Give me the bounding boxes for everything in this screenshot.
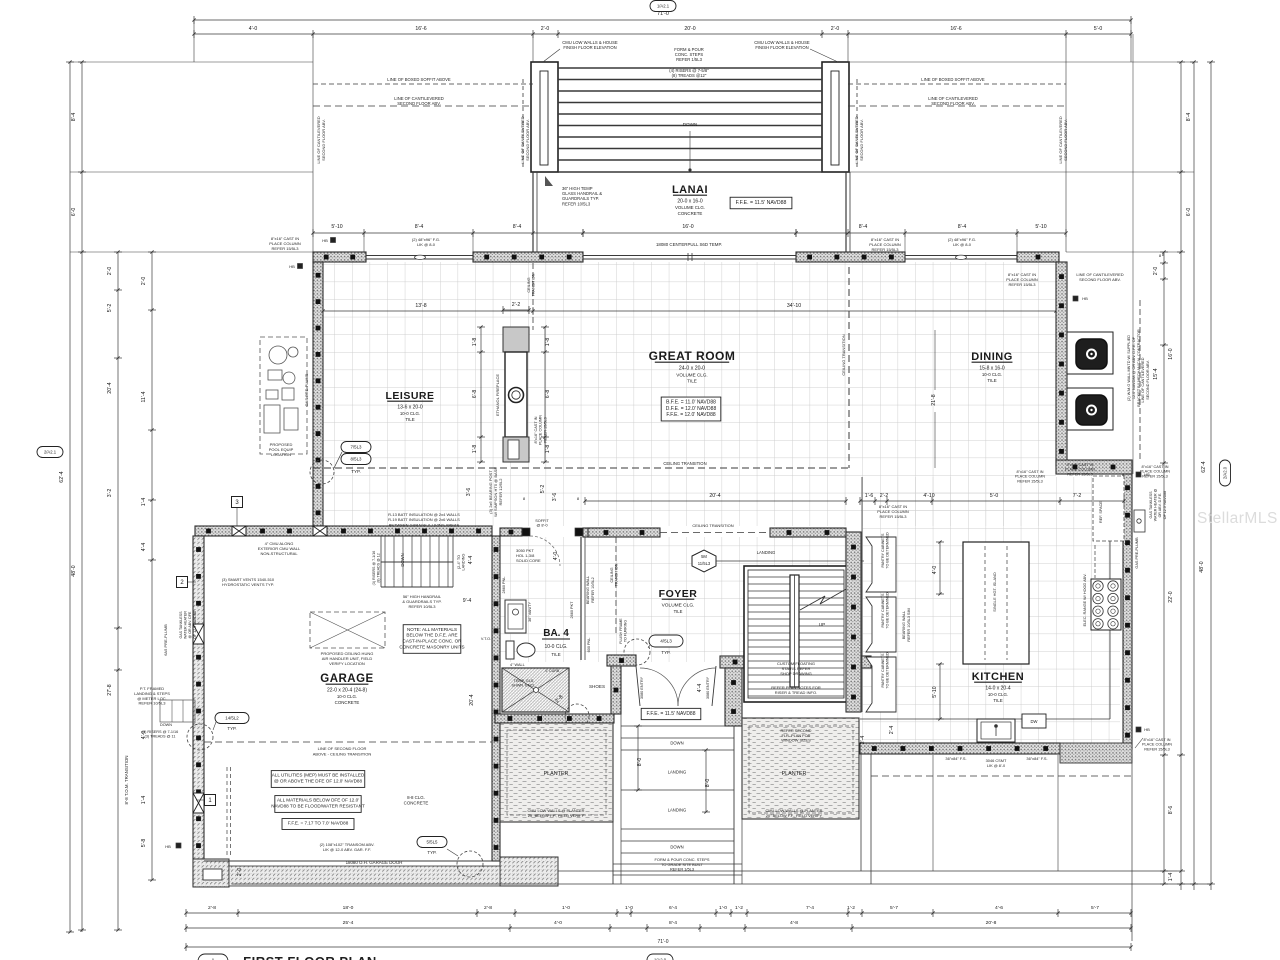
svg-text:PLANTER: PLANTER — [544, 771, 569, 777]
svg-text:4'-10: 4'-10 — [923, 493, 934, 499]
svg-text:8'-4: 8'-4 — [71, 113, 77, 122]
svg-text:SHOP DRAWING: SHOP DRAWING — [780, 671, 812, 676]
svg-text:TO BE DETERMINED: TO BE DETERMINED — [886, 592, 890, 629]
svg-text:FIRST FLOOR PLAN: FIRST FLOOR PLAN — [243, 954, 377, 960]
svg-text:10-0 CLG.: 10-0 CLG. — [982, 372, 1002, 377]
svg-text:TYP.: TYP. — [427, 850, 436, 855]
svg-text:NOTE: ALL MATERIALS: NOTE: ALL MATERIALS — [407, 627, 457, 632]
svg-text:BEARING WALL: BEARING WALL — [586, 576, 590, 604]
svg-text:2/A2.1: 2/A2.1 — [44, 450, 57, 455]
svg-text:LANDING: LANDING — [668, 770, 687, 775]
svg-text:20" BELOW F.F., FIELD VERIFY: 20" BELOW F.F., FIELD VERIFY — [528, 813, 585, 818]
svg-text:DINING: DINING — [971, 351, 1013, 363]
svg-text:OF 12.0 NAVD88: OF 12.0 NAVD88 — [193, 611, 197, 639]
svg-text:6'-8: 6'-8 — [545, 390, 551, 399]
svg-text:SECOND FLOOR ABV.: SECOND FLOOR ABV. — [1079, 277, 1121, 282]
svg-text:25'-4: 25'-4 — [343, 920, 354, 926]
svg-text:2'-0: 2'-0 — [237, 868, 243, 877]
svg-text:(8) TREADS @ 12: (8) TREADS @ 12 — [377, 553, 381, 583]
svg-text:TILE: TILE — [405, 417, 414, 422]
svg-text:F.F.E. = 11.5' NAVD88: F.F.E. = 11.5' NAVD88 — [647, 711, 696, 717]
svg-text:5'-2: 5'-2 — [540, 485, 546, 494]
svg-text:SECOND FLOOR ABV.: SECOND FLOOR ABV. — [931, 101, 975, 106]
svg-text:REFER 15/5L3: REFER 15/5L3 — [543, 417, 547, 443]
svg-text:2/A2.0: 2/A2.0 — [1223, 466, 1228, 479]
svg-text:REFER 15/5L3: REFER 15/5L3 — [1142, 474, 1168, 478]
svg-text:SECOND FLOOR ABV.: SECOND FLOOR ABV. — [1146, 360, 1150, 400]
svg-text:CEILING TRANSITION: CEILING TRANSITION — [692, 523, 733, 528]
svg-text:24-0 x 20-0: 24-0 x 20-0 — [679, 366, 705, 372]
svg-text:NON-STRUCTURAL: NON-STRUCTURAL — [260, 551, 298, 556]
svg-text:600 PNL: 600 PNL — [587, 638, 591, 653]
svg-text:9'-4: 9'-4 — [463, 598, 472, 604]
svg-text:6'-4: 6'-4 — [669, 905, 677, 911]
svg-text:TO BE DETERMINED: TO BE DETERMINED — [886, 532, 890, 569]
svg-text:3'-6: 3'-6 — [552, 493, 558, 502]
svg-text:SECOND FLOOR ABV.: SECOND FLOOR ABV. — [397, 101, 441, 106]
svg-text:2'-4: 2'-4 — [860, 736, 866, 745]
svg-text:4" WALL: 4" WALL — [510, 663, 525, 667]
svg-text:1'-4: 1'-4 — [141, 796, 147, 805]
svg-text:1'-4: 1'-4 — [1168, 873, 1174, 882]
svg-text:21'-8: 21'-8 — [931, 394, 937, 405]
svg-text:StellarMLS: StellarMLS — [1197, 510, 1278, 527]
svg-text:PLACE COLUMN: PLACE COLUMN — [1140, 470, 1170, 474]
svg-text:8"x16" CAST IN: 8"x16" CAST IN — [1067, 463, 1094, 467]
svg-text:GREAT ROOM: GREAT ROOM — [649, 349, 736, 363]
svg-text:SINGLE HGT. ISLAND: SINGLE HGT. ISLAND — [992, 572, 997, 612]
svg-text:REFER 15/5L3: REFER 15/5L3 — [880, 514, 908, 519]
svg-text:5M: 5M — [701, 554, 707, 559]
svg-text:TILE: TILE — [551, 652, 560, 657]
svg-text:ALL UTILITIES (MEP) MUST BE IN: ALL UTILITIES (MEP) MUST BE INSTALLED — [272, 773, 365, 778]
svg-text:LANDING: LANDING — [757, 550, 776, 555]
svg-text:CONCRETE: CONCRETE — [404, 800, 429, 805]
svg-text:1'-0: 1'-0 — [625, 905, 633, 911]
svg-text:ELEC. RANGE W/ HOOD ABV.: ELEC. RANGE W/ HOOD ABV. — [1083, 574, 1087, 627]
svg-text:REFER 15/5L3: REFER 15/5L3 — [1144, 747, 1170, 751]
svg-text:REFER 10/5L3: REFER 10/5L3 — [409, 604, 437, 609]
svg-text:36"x84" F.S.: 36"x84" F.S. — [945, 756, 966, 761]
svg-text:FINISH FLOOR ELEVATION: FINISH FLOOR ELEVATION — [755, 45, 808, 50]
svg-text:REFER 12/5L2: REFER 12/5L2 — [498, 478, 503, 506]
svg-text:10-0 CLG.: 10-0 CLG. — [400, 411, 420, 416]
svg-text:18080 O.H. GARAGE DOOR: 18080 O.H. GARAGE DOOR — [346, 860, 403, 865]
svg-text:16'-0: 16'-0 — [682, 224, 693, 230]
svg-text:PANTRY CABINETS: PANTRY CABINETS — [881, 593, 885, 628]
svg-text:SHWR. ENCL.: SHWR. ENCL. — [512, 684, 537, 688]
svg-text:TYP.: TYP. — [661, 650, 670, 655]
svg-text:5'-8: 5'-8 — [141, 839, 147, 848]
svg-text:(3) RISERS @ 7-1/16: (3) RISERS @ 7-1/16 — [372, 551, 376, 586]
svg-text:ALL MATERIALS BELOW DFE OF 12.: ALL MATERIALS BELOW DFE OF 12.0' — [277, 798, 359, 803]
svg-text:16'-6: 16'-6 — [415, 26, 426, 32]
svg-text:1'-2: 1'-2 — [735, 905, 743, 911]
svg-text:8'-6: 8'-6 — [1168, 806, 1174, 815]
svg-text:2'-0: 2'-0 — [1153, 267, 1159, 276]
svg-text:TILE: TILE — [987, 378, 996, 383]
svg-text:GAS TANKLESS: GAS TANKLESS — [179, 611, 183, 639]
svg-text:SOFFIT: SOFFIT — [535, 519, 549, 523]
svg-text:5'-7: 5'-7 — [890, 905, 898, 911]
svg-text:HB: HB — [322, 238, 328, 243]
svg-text:4'-0: 4'-0 — [554, 920, 562, 926]
svg-text:20" BELOW F.F., FIELD VERIFY: 20" BELOW F.F., FIELD VERIFY — [766, 813, 823, 818]
svg-text:PLACE COLUMN: PLACE COLUMN — [539, 415, 543, 445]
svg-text:DW: DW — [1031, 719, 1038, 724]
svg-text:3'-2: 3'-2 — [107, 489, 113, 498]
svg-text:6'-8: 6'-8 — [472, 390, 478, 399]
svg-text:TRANSITION: TRANSITION — [615, 563, 619, 586]
svg-text:8-8 CLG.: 8-8 CLG. — [407, 795, 425, 800]
svg-text:48'-0: 48'-0 — [1199, 561, 1205, 572]
svg-text:REF. SPACE: REF. SPACE — [1099, 501, 1103, 523]
svg-text:HB: HB — [289, 264, 295, 269]
svg-text:WINDOW SIZES: WINDOW SIZES — [781, 738, 811, 743]
svg-text:1'-4: 1'-4 — [141, 498, 147, 507]
svg-text:CONCRETE: CONCRETE — [335, 700, 360, 705]
svg-text:2'-8: 2'-8 — [484, 905, 492, 911]
svg-text:REFER 10/5L3: REFER 10/5L3 — [562, 201, 591, 206]
svg-text:WATER HEATER: WATER HEATER — [184, 611, 188, 639]
svg-text:8"x16" CAST IN: 8"x16" CAST IN — [534, 416, 538, 443]
svg-text:36" VANITY: 36" VANITY — [528, 602, 532, 623]
svg-text:10-0 CLG.: 10-0 CLG. — [337, 694, 357, 699]
svg-text:8'-4: 8'-4 — [415, 224, 424, 230]
svg-text:TILE: TILE — [993, 698, 1002, 703]
svg-text:8'-4: 8'-4 — [958, 224, 967, 230]
svg-text:LINE OF SECOND FLOOR: LINE OF SECOND FLOOR — [318, 746, 367, 751]
svg-text:5'-0: 5'-0 — [1094, 26, 1103, 32]
svg-text:8'-4: 8'-4 — [1186, 113, 1192, 122]
svg-text:KITCHEN: KITCHEN — [972, 671, 1024, 683]
svg-text:SECOND FLOOR ABV.: SECOND FLOOR ABV. — [859, 119, 864, 161]
svg-text:20'-4: 20'-4 — [469, 694, 475, 705]
svg-text:6A5 PRE-PLUMB: 6A5 PRE-PLUMB — [163, 624, 168, 656]
svg-text:8'-4: 8'-4 — [859, 224, 868, 230]
svg-text:11'-4: 11'-4 — [141, 391, 147, 402]
svg-text:TYP.: TYP. — [227, 726, 236, 731]
svg-text:REFER 15/5L3: REFER 15/5L3 — [1067, 472, 1093, 476]
svg-text:2'-0: 2'-0 — [831, 26, 840, 32]
svg-text:62'-4: 62'-4 — [1201, 461, 1207, 472]
svg-text:VOLUME CLG.: VOLUME CLG. — [676, 372, 707, 377]
svg-text:11/5L3: 11/5L3 — [698, 561, 711, 566]
svg-text:REFER 15/5L3: REFER 15/5L3 — [1009, 282, 1037, 287]
svg-text:@ 8'-0: @ 8'-0 — [536, 524, 547, 528]
svg-text:SECOND FLOOR ABV.: SECOND FLOOR ABV. — [1063, 119, 1068, 161]
svg-text:13-6 x 20-0: 13-6 x 20-0 — [397, 405, 423, 411]
svg-text:(2) W.M.G WALL MNTD W/ SUPPLIE: (2) W.M.G WALL MNTD W/ SUPPLIED — [1127, 335, 1131, 401]
svg-text:REFER 10/5L2: REFER 10/5L2 — [591, 577, 595, 603]
svg-text:2'-0: 2'-0 — [107, 267, 113, 276]
svg-text:LIK @ 8-0: LIK @ 8-0 — [953, 242, 972, 247]
svg-text:18080 CENTERPULL S6D TEMP.: 18080 CENTERPULL S6D TEMP. — [656, 242, 722, 247]
svg-text:REFER 15/5L3: REFER 15/5L3 — [872, 247, 900, 252]
svg-text:LIK @ 12-0 ABV. GAR. F.F.: LIK @ 12-0 ABV. GAR. F.F. — [323, 847, 371, 852]
svg-text:F.F.E. = 11.5' NAVD88: F.F.E. = 11.5' NAVD88 — [736, 200, 787, 206]
svg-text:4'-4: 4'-4 — [468, 556, 474, 565]
svg-text:1'-8: 1'-8 — [472, 338, 478, 347]
svg-text:27'-8: 27'-8 — [107, 684, 113, 695]
svg-text:PANTRY CABINETS: PANTRY CABINETS — [881, 653, 885, 688]
svg-text:GARAGE: GARAGE — [320, 673, 373, 685]
svg-text:FOYER: FOYER — [659, 588, 698, 600]
svg-text:5'-0: 5'-0 — [990, 493, 999, 499]
svg-text:LINE OF CANTILEVERED: LINE OF CANTILEVERED — [1141, 357, 1145, 402]
svg-text:REFER 15/5L3: REFER 15/5L3 — [1017, 479, 1043, 483]
svg-text:TO FURRING: TO FURRING — [624, 620, 628, 642]
svg-text:3080 ENTRY: 3080 ENTRY — [640, 676, 644, 699]
svg-text:BELOW THE D.F.E. ARE: BELOW THE D.F.E. ARE — [406, 633, 457, 638]
svg-text:CEILING: CEILING — [610, 567, 614, 582]
svg-text:CEILING TRANSITION: CEILING TRANSITION — [663, 461, 706, 466]
svg-text:2'-4: 2'-4 — [889, 726, 895, 735]
svg-text:5'-2: 5'-2 — [107, 304, 113, 313]
svg-text:LANAI: LANAI — [672, 184, 708, 196]
svg-text:16'-0: 16'-0 — [1168, 348, 1174, 359]
svg-text:ABOVE - CEILING TRANSITION: ABOVE - CEILING TRANSITION — [313, 751, 372, 756]
svg-text:22'-0: 22'-0 — [1168, 591, 1174, 602]
svg-text:1'-0: 1'-0 — [719, 905, 727, 911]
svg-text:8'-8 T.O.M. TRANSITION: 8'-8 T.O.M. TRANSITION — [124, 756, 129, 805]
svg-text:8'-0: 8'-0 — [705, 779, 711, 788]
svg-text:BEARING WALL: BEARING WALL — [902, 611, 906, 639]
svg-text:REFER 10/5L3: REFER 10/5L3 — [139, 701, 167, 706]
svg-text:GAS TANKLESS: GAS TANKLESS — [1149, 491, 1153, 519]
svg-text:UP: UP — [819, 622, 825, 627]
svg-text:BRACKET BY MECHANICAL CONTRACT: BRACKET BY MECHANICAL CONTRACTOR — [1137, 329, 1141, 407]
svg-text:CAST-IN-PLACE CONC. OR: CAST-IN-PLACE CONC. OR — [403, 639, 463, 644]
svg-text:TILE: TILE — [674, 609, 683, 614]
svg-text:LIK @ 8'-0: LIK @ 8'-0 — [987, 763, 1006, 768]
svg-text:FINISH FLOOR ELEVATION: FINISH FLOOR ELEVATION — [563, 45, 616, 50]
svg-text:4'-0: 4'-0 — [932, 566, 938, 575]
svg-text:PLACE COLUMN: PLACE COLUMN — [1065, 468, 1095, 472]
svg-text:TRANSITION: TRANSITION — [532, 273, 536, 296]
svg-text:4/5L3: 4/5L3 — [660, 639, 672, 644]
svg-text:15'-4: 15'-4 — [1153, 368, 1159, 379]
svg-text:8"x16" CAST IN: 8"x16" CAST IN — [1142, 465, 1169, 469]
svg-text:6'-0: 6'-0 — [71, 208, 77, 217]
svg-text:(2-4" TO: (2-4" TO — [457, 555, 461, 569]
svg-text:20'-0: 20'-0 — [684, 26, 695, 32]
svg-text:DOWN: DOWN — [670, 845, 683, 850]
svg-text:TO BE DETERMINED: TO BE DETERMINED — [886, 652, 890, 689]
svg-text:1/A2.1: 1/A2.1 — [657, 4, 670, 9]
svg-text:@ OR ABV. DFE: @ OR ABV. DFE — [188, 611, 192, 638]
svg-text:7'-4: 7'-4 — [806, 905, 814, 911]
svg-text:2'-8: 2'-8 — [208, 905, 216, 911]
svg-text:TILE: TILE — [687, 379, 697, 384]
svg-text:HB: HB — [1144, 727, 1150, 732]
svg-text:TYP.: TYP. — [351, 469, 361, 474]
svg-text:DOWN: DOWN — [160, 723, 172, 727]
svg-text:8/5L3: 8/5L3 — [351, 457, 363, 462]
svg-text:8"x16" CAST IN: 8"x16" CAST IN — [1017, 470, 1044, 474]
svg-text:HB: HB — [1082, 296, 1088, 301]
svg-text:34'-10: 34'-10 — [787, 303, 801, 309]
svg-text:1'-2: 1'-2 — [847, 905, 855, 911]
svg-text:8"x16" CAST IN: 8"x16" CAST IN — [1144, 738, 1171, 742]
svg-text:4'-8: 4'-8 — [790, 920, 798, 926]
svg-text:LEISURE: LEISURE — [385, 390, 434, 402]
svg-text:5'-10: 5'-10 — [331, 224, 342, 230]
svg-text:LINE OF BOXED SOFFIT ABOVE: LINE OF BOXED SOFFIT ABOVE — [921, 77, 985, 82]
svg-text:OR ABV. D.F.E.: OR ABV. D.F.E. — [1158, 493, 1162, 518]
svg-text:13'-8: 13'-8 — [415, 303, 426, 309]
svg-text:F.F.E. = 12.0' NAVD88: F.F.E. = 12.0' NAVD88 — [666, 412, 716, 418]
svg-text:16'-6: 16'-6 — [950, 26, 961, 32]
svg-text:WATER HEATER @: WATER HEATER @ — [1154, 488, 1158, 521]
svg-text:4'-6: 4'-6 — [995, 905, 1003, 911]
svg-text:20-0 x 16-0: 20-0 x 16-0 — [677, 199, 703, 205]
svg-text:CONCRETE MASONRY UNITS: CONCRETE MASONRY UNITS — [399, 645, 464, 650]
svg-text:22-0 x 20-4 (24-8): 22-0 x 20-4 (24-8) — [327, 688, 367, 694]
svg-text:5'-10: 5'-10 — [932, 686, 938, 697]
svg-text:D.F.E. = 12.0' NAVD88: D.F.E. = 12.0' NAVD88 — [666, 406, 717, 412]
svg-text:14-0 x 20-4: 14-0 x 20-4 — [985, 686, 1011, 692]
svg-text:3'-6: 3'-6 — [466, 488, 472, 497]
svg-text:8'-0: 8'-0 — [637, 758, 643, 767]
svg-text:8'-4: 8'-4 — [669, 920, 677, 926]
svg-text:7'-2: 7'-2 — [1073, 493, 1082, 499]
svg-text:10-0 CLG.: 10-0 CLG. — [544, 644, 567, 650]
svg-text:PANTRY CABINETS: PANTRY CABINETS — [881, 533, 885, 568]
svg-text:RISER & TREAD INFO.: RISER & TREAD INFO. — [775, 690, 817, 695]
svg-text:2860 PNL: 2860 PNL — [502, 577, 506, 594]
svg-text:20'-4: 20'-4 — [107, 382, 113, 393]
svg-text:REFER 10/5L3 SIM: REFER 10/5L3 SIM — [907, 608, 911, 641]
svg-text:1'-0: 1'-0 — [562, 905, 570, 911]
svg-text:VERIFY LOCATION: VERIFY LOCATION — [329, 661, 365, 666]
svg-text:7/5L3: 7/5L3 — [351, 445, 363, 450]
svg-text:LINE OF BOXED SOFFIT ABOVE: LINE OF BOXED SOFFIT ABOVE — [387, 77, 451, 82]
svg-text:SHOES: SHOES — [589, 684, 605, 689]
svg-text:4'-4: 4'-4 — [697, 684, 703, 693]
svg-text:3080 ENTRY: 3080 ENTRY — [706, 676, 710, 699]
svg-text:CEILING: CEILING — [527, 277, 531, 292]
svg-text:REFER 15/5L3: REFER 15/5L3 — [272, 246, 300, 251]
svg-text:2'-2: 2'-2 — [512, 302, 521, 308]
svg-text:NAVD88 TO BE FLOOD/WATER RESIS: NAVD88 TO BE FLOOD/WATER RESISTANT — [271, 804, 365, 809]
svg-text:B.F.E. = 11.0' NAVD88: B.F.E. = 11.0' NAVD88 — [666, 400, 716, 406]
svg-text:2'-0: 2'-0 — [141, 277, 147, 286]
svg-text:REFER 1/5L3: REFER 1/5L3 — [676, 57, 703, 62]
svg-text:1'-8: 1'-8 — [472, 445, 478, 454]
svg-text:DOWN: DOWN — [670, 741, 683, 746]
svg-text:FLUSH FRAME: FLUSH FRAME — [619, 618, 623, 644]
svg-text:4'-4: 4'-4 — [141, 543, 147, 552]
svg-text:1'-8: 1'-8 — [545, 338, 551, 347]
svg-text:71'-0: 71'-0 — [658, 939, 669, 945]
svg-text:14/5L2: 14/5L2 — [225, 716, 239, 721]
svg-text:1'-6: 1'-6 — [865, 493, 874, 499]
svg-text:36"x84" F.S.: 36"x84" F.S. — [1026, 756, 1047, 761]
svg-text:15-8 x 16-0: 15-8 x 16-0 — [979, 366, 1005, 372]
svg-text:SECOND FLOOR ABV.: SECOND FLOOR ABV. — [321, 119, 326, 161]
svg-text:HYDROSTATIC VENTS TYP.: HYDROSTATIC VENTS TYP. — [222, 582, 274, 587]
svg-text:DOWN: DOWN — [400, 553, 405, 566]
svg-text:2660 PKT: 2660 PKT — [570, 601, 574, 619]
svg-text:VOLUME CLG.: VOLUME CLG. — [662, 603, 695, 609]
svg-text:SOLID CORE: SOLID CORE — [516, 558, 541, 563]
svg-text:VOLUME CLG.: VOLUME CLG. — [675, 205, 705, 210]
svg-text:ETHANOL FIREPLACE: ETHANOL FIREPLACE — [495, 374, 500, 416]
svg-text:LANDING: LANDING — [668, 808, 687, 813]
svg-text:62'-4: 62'-4 — [59, 471, 65, 482]
svg-text:GAS PRE-PLUMB: GAS PRE-PLUMB — [1135, 537, 1139, 569]
svg-text:HB: HB — [165, 844, 171, 849]
svg-text:LANDING: LANDING — [462, 554, 466, 571]
svg-text:(3) RISERS @ 7-1/16: (3) RISERS @ 7-1/16 — [142, 730, 179, 734]
svg-text:5/5L5: 5/5L5 — [427, 840, 439, 845]
svg-text:8'-4: 8'-4 — [513, 224, 522, 230]
svg-text:PLANTER: PLANTER — [782, 771, 807, 777]
svg-text:TEMP. GLS.: TEMP. GLS. — [514, 679, 535, 683]
svg-text:20'-8: 20'-8 — [986, 920, 997, 926]
svg-text:5'-10: 5'-10 — [1035, 224, 1046, 230]
svg-text:V.T.O.: V.T.O. — [481, 637, 491, 641]
svg-text:GAS PRE-PLUMB: GAS PRE-PLUMB — [304, 373, 309, 406]
svg-text:(8) TREADS @12": (8) TREADS @12" — [672, 73, 707, 78]
svg-text:2'-0: 2'-0 — [541, 26, 550, 32]
svg-text:@ OR ABOVE THE DFE OF 12.0' NA: @ OR ABOVE THE DFE OF 12.0' NAVD88 — [274, 779, 363, 784]
svg-text:BETWEEN GARAGE & LIVING AREAS: BETWEEN GARAGE & LIVING AREAS — [389, 522, 460, 527]
svg-text:10-0 CLG.: 10-0 CLG. — [988, 692, 1008, 697]
svg-text:F.F.E. = 7.17 TO 7.0' NAVD88: F.F.E. = 7.17 TO 7.0' NAVD88 — [288, 821, 349, 826]
svg-text:18'-0: 18'-0 — [343, 905, 354, 911]
svg-text:20'-4: 20'-4 — [709, 493, 720, 499]
svg-text:DOWN: DOWN — [683, 122, 698, 127]
svg-text:LOCATION: LOCATION — [271, 452, 291, 457]
svg-text:OF 12.0' NAVD88: OF 12.0' NAVD88 — [1163, 491, 1167, 519]
svg-text:PLACE COLUMN: PLACE COLUMN — [1015, 475, 1045, 479]
svg-text:CONCRETE: CONCRETE — [678, 211, 703, 216]
svg-text:2'-2: 2'-2 — [880, 493, 889, 499]
svg-text:12.0' NAVD88 @ OR ABV. D.F.E.: 12.0' NAVD88 @ OR ABV. D.F.E. OF — [1132, 336, 1136, 399]
svg-text:CEILING TRANSITION: CEILING TRANSITION — [841, 334, 846, 375]
svg-text:PLACE COLUMN: PLACE COLUMN — [1142, 743, 1172, 747]
svg-text:BA. 4: BA. 4 — [543, 628, 569, 639]
svg-text:SECOND FLOOR ABV.: SECOND FLOOR ABV. — [525, 119, 530, 161]
svg-text:1'-8: 1'-8 — [545, 445, 551, 454]
svg-text:6'-0: 6'-0 — [1186, 208, 1192, 217]
svg-text:LIK @ 8-0: LIK @ 8-0 — [417, 242, 436, 247]
svg-text:4'-0: 4'-0 — [249, 26, 258, 32]
svg-text:(3) TREADS @ 11: (3) TREADS @ 11 — [145, 735, 176, 739]
svg-text:48'-0: 48'-0 — [71, 565, 77, 576]
svg-text:4" CURB: 4" CURB — [545, 669, 560, 673]
svg-text:5'-7: 5'-7 — [1091, 905, 1099, 911]
